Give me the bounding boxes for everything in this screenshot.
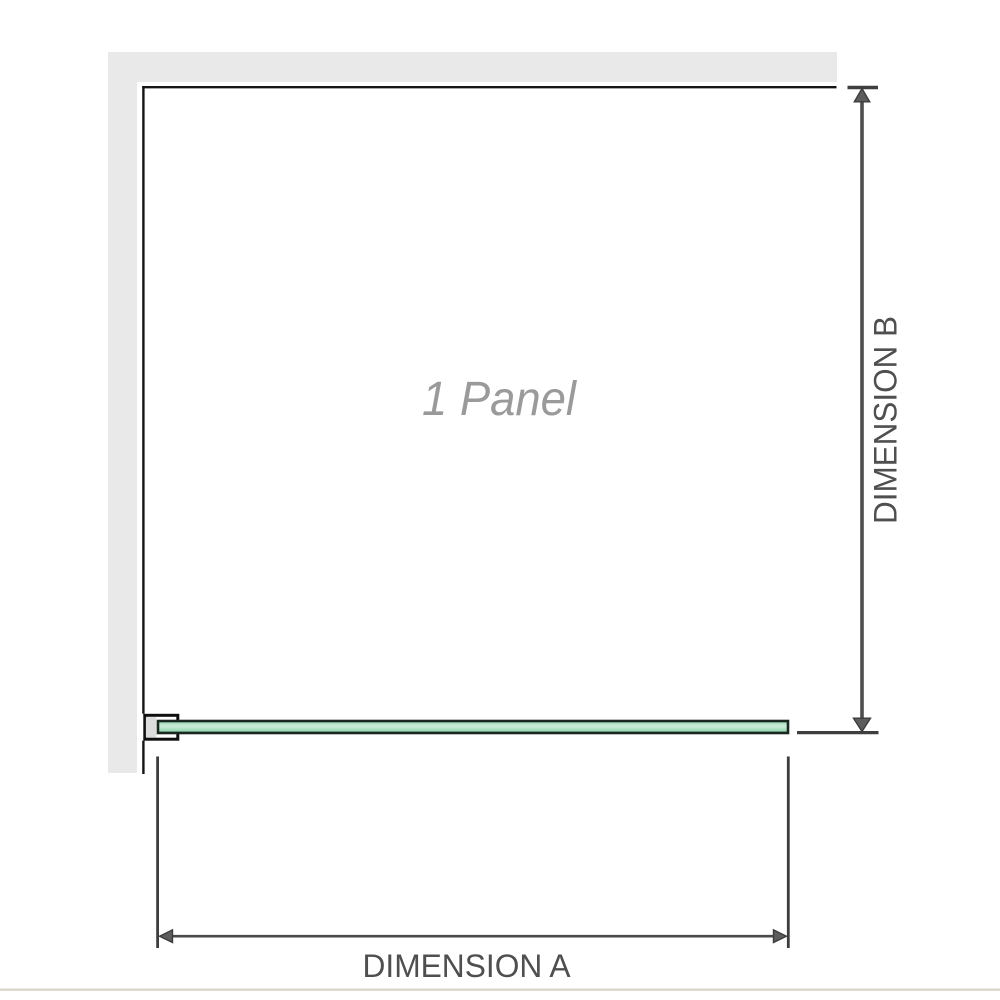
svg-text:DIMENSION B: DIMENSION B xyxy=(868,316,904,524)
svg-text:DIMENSION A: DIMENSION A xyxy=(363,948,571,984)
svg-text:1 Panel: 1 Panel xyxy=(422,373,577,426)
